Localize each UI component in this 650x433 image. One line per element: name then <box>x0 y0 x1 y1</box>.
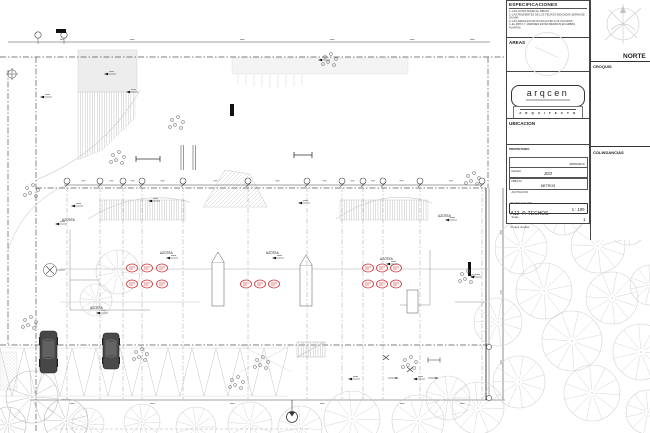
tree-symbol <box>426 376 470 420</box>
dim-text-speck <box>501 290 502 295</box>
dim-text-speck <box>110 180 114 181</box>
revision-marker <box>127 280 138 288</box>
ring-marker <box>44 264 66 277</box>
ubicacion-title: UBICACION <box>509 121 587 126</box>
dim-text-speck <box>475 274 480 275</box>
revision-marker <box>377 280 388 288</box>
revision-marker <box>127 264 138 272</box>
tree-symbol <box>324 391 380 433</box>
croquis-label: CROQUIS <box>593 64 648 69</box>
revision-marker <box>157 264 168 272</box>
interior-walls <box>60 230 488 310</box>
spec-note: 1.-LAS COTAS RIGEN AL DIBUJO <box>509 10 587 13</box>
azotea-label: AZOTEA <box>438 214 452 218</box>
dim-text-speck <box>60 39 65 40</box>
dim-text-speck <box>109 71 114 72</box>
revision-marker <box>363 280 374 288</box>
azotea-label: AZOTEA <box>160 251 174 255</box>
grid-bubble <box>180 178 186 184</box>
plant-cluster <box>228 375 244 389</box>
tree-symbol <box>564 365 620 421</box>
dim-text-speck <box>171 255 176 256</box>
tree-symbol <box>228 402 272 433</box>
project-number-row: Project number 1 <box>509 214 588 225</box>
spot-elevation-marker <box>298 200 310 204</box>
azotea-label: AZOTEA <box>380 257 394 261</box>
plant-cluster <box>401 355 417 369</box>
arqcen-logo-tagline <box>526 99 571 101</box>
tree-symbol <box>392 395 444 433</box>
grid-bubble <box>479 178 485 184</box>
dim-text-speck <box>371 180 375 181</box>
grid-bubble <box>139 178 145 184</box>
dim-text-speck <box>418 376 423 377</box>
dim-text-speck <box>400 180 404 181</box>
revision-marker <box>269 280 280 288</box>
grid-bubble <box>380 178 386 184</box>
car-1 <box>39 331 58 373</box>
tree-symbol <box>0 407 26 433</box>
title-block: ESPECIFICACIONES 1.-LAS COTAS RIGEN AL D… <box>506 0 590 224</box>
tree-symbol <box>6 371 58 423</box>
grid-bubble <box>64 178 70 184</box>
dim-text-speck <box>131 180 135 181</box>
areas-sketch <box>525 32 569 76</box>
scale-value: 1 : 100 <box>572 207 585 212</box>
tree-symbol <box>613 324 650 380</box>
plano-row: PLANO Y CLAVE A12 P. TECHOS <box>509 190 588 203</box>
dim-text-speck <box>391 261 396 262</box>
dim-text-speck <box>82 180 86 181</box>
azotea-label: AZOTEA <box>90 306 104 310</box>
dim-text-speck <box>277 255 282 256</box>
revision-markers-layer <box>127 264 402 288</box>
dim-text-speck <box>353 376 358 377</box>
spec-note: 2.-LAS PENDIENTES DE LOS TECHOS INDICADA… <box>509 13 587 20</box>
dim-text-speck <box>131 89 136 90</box>
solid-marker <box>56 29 66 33</box>
project-number-value: 1 <box>583 217 585 222</box>
fecha-value: 28/05/2013 <box>569 162 584 166</box>
dim-text-speck <box>320 403 325 404</box>
grid-bubble <box>35 32 41 38</box>
revision-marker <box>363 264 374 272</box>
areas-box: AREAS <box>507 38 589 72</box>
spec-note: 4.-EL PATIO Y JARDINES ESTAN MEDIDOS EN … <box>509 23 587 30</box>
dibujo-value: JGO <box>510 171 587 176</box>
acotacion-row: ACOTACION METROS <box>509 178 588 190</box>
spot-elevation-marker <box>40 94 52 98</box>
project-number-label: Project number <box>511 225 530 229</box>
plant-cluster <box>168 115 184 129</box>
grid-bubble <box>486 395 491 400</box>
colindancias-label: COLINDANCIAS <box>593 150 648 155</box>
especificaciones-title: ESPECIFICACIONES <box>509 2 587 9</box>
revision-marker <box>391 264 402 272</box>
colindancias-box: COLINDANCIAS <box>591 147 650 240</box>
spot-elevation-marker <box>166 255 178 259</box>
azotea-label: AZOTEA <box>266 251 280 255</box>
spot-elevation-marker <box>272 255 284 259</box>
grid-bubble <box>245 178 251 184</box>
croquis-box: CROQUIS <box>591 62 650 147</box>
dim-text-speck <box>330 39 335 40</box>
dim-text-speck <box>276 180 280 181</box>
architect-name-bar <box>520 109 576 111</box>
dim-text-speck <box>60 221 65 222</box>
revision-marker <box>142 264 153 272</box>
tree-symbol <box>44 399 88 433</box>
dim-text-speck <box>303 200 308 201</box>
tree-symbol <box>516 263 572 319</box>
grid-bubble <box>120 178 126 184</box>
dim-text-speck <box>150 403 155 404</box>
dim-text-speck <box>70 403 75 404</box>
tree-symbol <box>630 265 650 305</box>
tree-symbol <box>80 284 112 316</box>
dim-text-speck <box>460 403 465 404</box>
spot-elevation-marker <box>413 376 425 380</box>
dim-text-speck <box>501 230 502 235</box>
architect-title: A R Q U I T E C T O <box>514 111 582 115</box>
revision-marker <box>241 280 252 288</box>
tree-symbol <box>586 272 638 324</box>
dim-text-speck <box>449 180 453 181</box>
norte-label: NORTE <box>623 53 650 60</box>
spot-elevation-marker <box>71 203 83 207</box>
plant-cluster <box>21 315 37 329</box>
revision-marker <box>377 264 388 272</box>
dim-text-speck <box>410 39 415 40</box>
plant-cluster <box>464 171 480 185</box>
dim-text-speck <box>450 217 455 218</box>
section-marker <box>287 400 298 423</box>
plant-cluster <box>132 347 148 361</box>
dim-text-speck <box>153 198 158 199</box>
dim-text-speck <box>45 94 50 95</box>
revision-marker <box>142 280 153 288</box>
propietario-title: PROPIETARIO <box>509 147 587 151</box>
dim-text-speck <box>161 180 165 181</box>
ubicacion-box: UBICACION <box>507 118 589 145</box>
grid-bubble <box>97 178 103 184</box>
arqcen-logo-text: arqcen <box>512 88 584 98</box>
grid-bubble <box>339 178 345 184</box>
tree-symbol <box>542 311 602 371</box>
car-2 <box>102 333 120 369</box>
fecha-row: FECHA 28/05/2013 <box>509 157 588 168</box>
dim-text-speck <box>230 403 235 404</box>
grid-bubble <box>486 344 491 349</box>
plant-cluster <box>23 183 39 197</box>
dim-text-speck <box>351 180 355 181</box>
tree-symbol <box>124 404 160 433</box>
dim-text-speck <box>501 360 502 365</box>
dim-text-speck <box>323 180 327 181</box>
scale-row: Scale 1 : 100 <box>509 203 588 214</box>
revision-marker <box>255 280 266 288</box>
dim-text-speck <box>323 57 328 58</box>
dim-text-speck <box>214 180 218 181</box>
revision-marker <box>391 280 402 288</box>
dim-text-speck <box>101 310 106 311</box>
tree-symbol <box>474 298 522 346</box>
tree-symbol <box>452 382 504 433</box>
dim-text-speck <box>130 39 135 40</box>
dim-text-speck <box>240 39 245 40</box>
plant-cluster <box>253 355 269 369</box>
revision-marker <box>157 280 168 288</box>
especificaciones-notes: 1.-LAS COTAS RIGEN AL DIBUJO2.-LAS PENDI… <box>509 10 587 30</box>
acotacion-value: METROS <box>510 184 587 188</box>
arqcen-logo: arqcen <box>511 85 585 107</box>
dim-text-speck <box>400 403 405 404</box>
grid-bubble <box>304 178 310 184</box>
dim-text-speck <box>76 203 81 204</box>
plant-cluster <box>109 150 125 164</box>
north-arrow-icon <box>591 0 650 56</box>
property-boundary <box>0 57 505 433</box>
spot-elevation-marker <box>348 376 360 380</box>
propietario-box: PROPIETARIO <box>507 145 589 157</box>
dim-text-speck <box>470 39 475 40</box>
tree-symbol <box>626 390 650 433</box>
spec-note: 3.-LAS AREAS EN M2 NO INCLUYEN LOS VOLAD… <box>509 19 587 22</box>
grid-bubble <box>360 178 366 184</box>
dibujo-row: DIBUJO JGO <box>509 168 588 178</box>
north-arrow-box: NORTE <box>591 0 650 62</box>
grid-bubble <box>417 178 423 184</box>
trees-layer <box>0 191 650 433</box>
title-block-right: NORTE CROQUIS COLINDANCIAS <box>590 0 650 240</box>
